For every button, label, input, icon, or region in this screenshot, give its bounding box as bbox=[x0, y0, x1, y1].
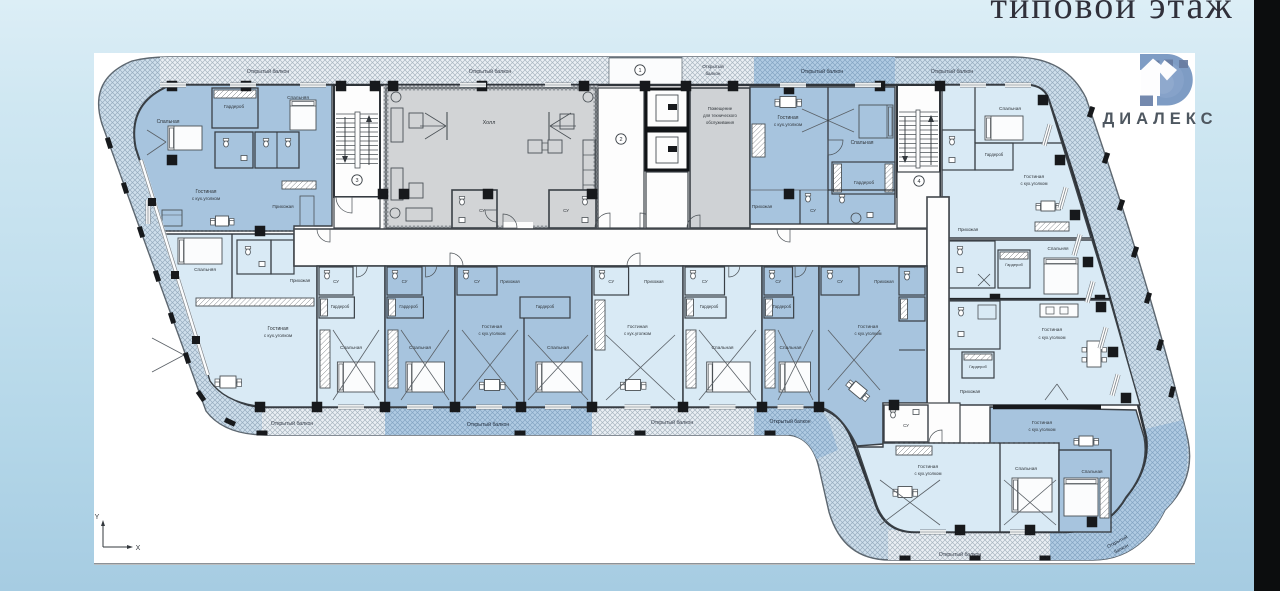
svg-text:Прихожая: Прихожая bbox=[272, 204, 294, 209]
svg-text:Гостиная: Гостиная bbox=[1042, 327, 1063, 333]
svg-text:1: 1 bbox=[638, 68, 641, 74]
svg-text:с кух.уголком: с кух.уголком bbox=[192, 196, 220, 201]
svg-text:Прихожая: Прихожая bbox=[874, 279, 893, 284]
svg-text:Прихожая: Прихожая bbox=[644, 279, 663, 284]
svg-text:СУ: СУ bbox=[333, 279, 339, 284]
svg-text:для технического: для технического bbox=[703, 113, 737, 118]
svg-text:СУ: СУ bbox=[702, 279, 708, 284]
svg-text:Гостиная: Гостиная bbox=[196, 189, 217, 195]
svg-text:Прихожая: Прихожая bbox=[752, 204, 773, 209]
svg-text:СУ: СУ bbox=[402, 279, 408, 284]
svg-text:Открытый балкон: Открытый балкон bbox=[769, 418, 810, 425]
svg-text:Спальная: Спальная bbox=[780, 345, 802, 351]
svg-text:Спальная: Спальная bbox=[1081, 469, 1103, 474]
svg-text:СУ: СУ bbox=[563, 208, 569, 213]
svg-text:Гардероб: Гардероб bbox=[536, 304, 555, 309]
svg-text:Открытый балкон: Открытый балкон bbox=[467, 421, 510, 428]
svg-text:Спальная: Спальная bbox=[547, 345, 569, 351]
svg-text:СУ: СУ bbox=[479, 208, 485, 213]
svg-text:Прихожая: Прихожая bbox=[290, 278, 311, 283]
svg-text:3: 3 bbox=[355, 178, 358, 184]
svg-text:Гардероб: Гардероб bbox=[700, 304, 719, 309]
svg-text:Гардероб: Гардероб bbox=[399, 304, 418, 309]
svg-text:Гардероб: Гардероб bbox=[985, 152, 1004, 157]
svg-text:СУ: СУ bbox=[903, 423, 909, 428]
svg-text:X: X bbox=[136, 545, 141, 552]
svg-text:Спальная: Спальная bbox=[999, 106, 1021, 112]
svg-text:Гостиная: Гостиная bbox=[918, 464, 939, 470]
svg-text:Гостиная: Гостиная bbox=[627, 324, 648, 330]
svg-text:Открытый: Открытый bbox=[702, 63, 724, 69]
svg-text:Открытый балкон: Открытый балкон bbox=[651, 419, 694, 426]
svg-text:ДИАЛЕКС: ДИАЛЕКС bbox=[1102, 110, 1217, 128]
svg-text:Открытый балкон: Открытый балкон bbox=[247, 68, 290, 75]
svg-text:Гардероб: Гардероб bbox=[1005, 262, 1023, 267]
svg-text:Гостиная: Гостиная bbox=[1032, 420, 1053, 426]
svg-text:СУ: СУ bbox=[810, 208, 816, 213]
svg-text:Спальная: Спальная bbox=[157, 119, 180, 125]
svg-text:с кух.уголком: с кух.уголком bbox=[478, 331, 505, 336]
svg-text:СУ: СУ bbox=[837, 279, 843, 284]
svg-text:Прихожая: Прихожая bbox=[960, 389, 981, 394]
svg-text:с кух.уголком: с кух.уголком bbox=[774, 122, 802, 127]
svg-text:4: 4 bbox=[917, 179, 920, 185]
svg-text:СУ: СУ bbox=[474, 279, 480, 284]
svg-text:обслуживания: обслуживания bbox=[706, 120, 734, 125]
svg-text:Гостиная: Гостиная bbox=[482, 324, 503, 330]
svg-text:с кух.уголком: с кух.уголком bbox=[1020, 181, 1047, 186]
svg-text:Открытый балкон: Открытый балкон bbox=[271, 420, 314, 427]
svg-text:с кух.уголком: с кух.уголком bbox=[914, 471, 941, 476]
svg-text:с кух.уголком: с кух.уголком bbox=[264, 333, 292, 338]
svg-text:Прихожая: Прихожая bbox=[958, 227, 979, 232]
svg-text:Гостиная: Гостиная bbox=[1024, 174, 1045, 180]
svg-text:с кух.уголком: с кух.уголком bbox=[1038, 335, 1065, 340]
svg-text:Y: Y bbox=[95, 514, 100, 521]
svg-text:Гардероб: Гардероб bbox=[773, 304, 792, 309]
svg-text:Прихожая: Прихожая bbox=[500, 279, 519, 284]
svg-text:Гостиная: Гостиная bbox=[268, 326, 289, 332]
svg-text:балкон: балкон bbox=[706, 71, 721, 76]
svg-text:Спальняя: Спальняя bbox=[194, 267, 216, 273]
svg-text:Спальняя: Спальняя bbox=[1048, 246, 1069, 251]
svg-text:Помещение: Помещение bbox=[708, 106, 733, 111]
svg-text:Гостиная: Гостиная bbox=[858, 324, 879, 330]
svg-text:с кух.уголком: с кух.уголком bbox=[624, 331, 651, 336]
svg-text:с кух.уголком: с кух.уголком bbox=[1028, 427, 1055, 432]
svg-text:Открытый балкон: Открытый балкон bbox=[801, 68, 844, 75]
svg-text:Гардероб: Гардероб bbox=[224, 104, 245, 109]
svg-text:Гардероб: Гардероб bbox=[854, 180, 875, 185]
svg-text:Открытый балкон: Открытый балкон bbox=[469, 68, 512, 75]
svg-text:Гостиная: Гостиная bbox=[778, 115, 799, 121]
svg-text:Гардероб: Гардероб bbox=[331, 304, 350, 309]
svg-text:СУ: СУ bbox=[775, 279, 781, 284]
svg-text:типовой этаж: типовой этаж bbox=[990, 0, 1233, 27]
svg-text:Холл: Холл bbox=[483, 120, 496, 126]
svg-text:2: 2 bbox=[619, 137, 622, 143]
svg-text:Спальная: Спальная bbox=[851, 140, 874, 146]
svg-text:Спальная: Спальная bbox=[1015, 466, 1037, 472]
svg-text:Гардероб: Гардероб bbox=[969, 364, 987, 369]
svg-text:Открытый балкон: Открытый балкон bbox=[931, 68, 974, 75]
svg-text:СУ: СУ bbox=[608, 279, 614, 284]
